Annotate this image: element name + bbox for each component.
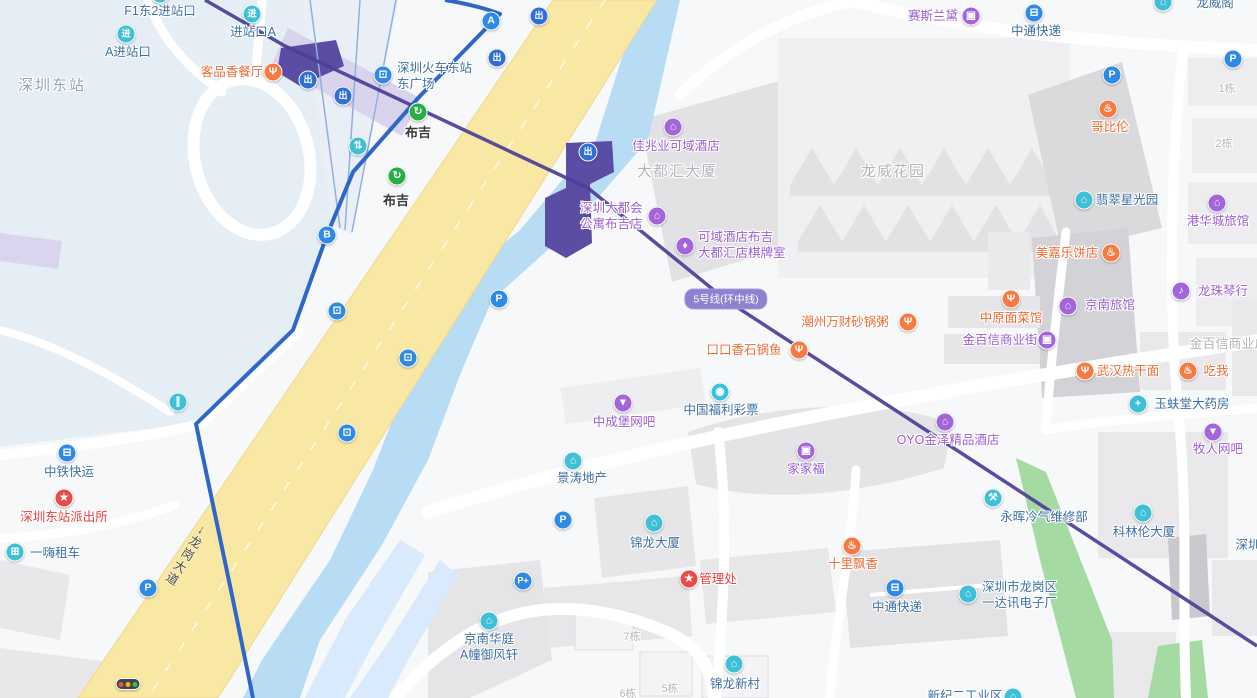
poi-label: 大都汇大厦: [637, 164, 717, 180]
poi-label: 深圳市龙岗区一达讯电子厂: [982, 579, 1057, 611]
pin-icon[interactable]: ▼: [614, 394, 633, 413]
parking-icon[interactable]: P: [554, 511, 573, 530]
star-icon[interactable]: ★: [680, 570, 699, 589]
poi-label: 中原面菜馆: [980, 310, 1043, 326]
car-icon[interactable]: ⊞: [6, 543, 25, 562]
poi-label: 锦龙大厦: [630, 535, 680, 551]
poi-label: 哥比伦: [1091, 119, 1129, 135]
hotel-icon[interactable]: ⌂: [1208, 194, 1227, 213]
building-icon[interactable]: ⌂: [480, 612, 499, 631]
poi-label: 佳兆业可域酒店: [632, 138, 720, 154]
building-icon[interactable]: ⌂: [564, 452, 583, 471]
police-icon[interactable]: ★: [55, 489, 74, 508]
poi-label: 进站口A: [230, 24, 276, 40]
poi-label: A进站口: [105, 44, 151, 60]
hotel-icon[interactable]: ⌂: [1059, 297, 1078, 316]
poi-label: 赛斯兰黛: [908, 8, 958, 24]
poi-label: 牧人网吧: [1193, 441, 1243, 457]
poi-label: 5栋: [661, 681, 678, 697]
building-icon[interactable]: ⌂: [645, 514, 664, 533]
parking-icon[interactable]: P: [1103, 66, 1122, 85]
poi-label: 龙威花园: [861, 164, 925, 180]
exit-a-icon[interactable]: A: [482, 12, 501, 31]
bus-stop-icon[interactable]: ⊡: [328, 302, 347, 321]
building-icon[interactable]: ⌂: [725, 655, 744, 674]
poi-label: 布吉: [405, 125, 431, 141]
poi-label: 龙珠琴行: [1198, 283, 1248, 299]
wrench-icon[interactable]: ⚒: [984, 489, 1003, 508]
metro-icon[interactable]: ↻: [388, 167, 407, 186]
truck-icon[interactable]: ⊟: [1025, 4, 1044, 23]
bus-station-icon[interactable]: ⊡: [374, 66, 393, 85]
traffic-light-icon: [116, 678, 141, 690]
poi-label: 深圳: [1235, 537, 1257, 553]
map-canvas[interactable]: 进F1东2进站口进进站口A进A进站口深圳东站Ψ客品香餐厅⊡深圳火车东站东广场↻布…: [0, 0, 1257, 698]
restaurant-icon[interactable]: Ψ: [264, 63, 283, 82]
pharmacy-icon[interactable]: +: [1129, 395, 1148, 414]
poi-label: 中国福利彩票: [683, 402, 758, 418]
poi-label: 布吉: [383, 193, 409, 209]
hotel-icon[interactable]: ⌂: [648, 207, 667, 226]
shopping-icon[interactable]: ▣: [1038, 331, 1057, 350]
poi-label: 锦龙新村: [710, 676, 760, 692]
poi-label: 口口香石锅鱼: [706, 342, 781, 358]
building-icon[interactable]: ⌂: [1004, 688, 1023, 698]
truck-icon[interactable]: ⊟: [886, 579, 905, 598]
poi-label: 中铁快运: [44, 464, 94, 480]
poi-label: 新纪二工业区: [927, 688, 1002, 698]
truck-icon[interactable]: ⊟: [58, 444, 77, 463]
building-icon[interactable]: ⌂: [1075, 191, 1094, 210]
metro-line-5-badge[interactable]: 5号线(环中线): [684, 289, 767, 310]
building-icon[interactable]: ⌂: [959, 585, 978, 604]
poi-label: 一嗨租车: [30, 545, 80, 561]
poi-label: 景涛地产: [557, 470, 607, 486]
exit-icon[interactable]: 出: [334, 87, 353, 106]
entrance-icon[interactable]: 进: [117, 25, 136, 44]
poi-label: F1东2进站口: [124, 3, 196, 19]
snack-icon[interactable]: ♨: [1179, 362, 1198, 381]
poi-label: 金百信商业广场: [1189, 336, 1257, 352]
exit-icon[interactable]: 出: [579, 143, 598, 162]
restaurant-icon[interactable]: Ψ: [1002, 290, 1021, 309]
poi-label: 1栋: [1218, 81, 1235, 97]
poi-label: 中通快递: [872, 599, 922, 615]
exit-icon[interactable]: 出: [530, 7, 549, 26]
building-icon[interactable]: ⌂: [1134, 504, 1153, 523]
building-icon[interactable]: ⌂: [1154, 0, 1173, 12]
poi-label: 武汉热干面: [1097, 363, 1160, 379]
poi-label: 港华城旅馆: [1187, 213, 1250, 229]
bakery-icon[interactable]: ♨: [1102, 244, 1121, 263]
poi-label: 可域酒店布吉大都汇店棋牌室: [698, 229, 786, 261]
poi-label: 深圳大都会公寓布吉店: [580, 200, 643, 232]
lottery-icon[interactable]: ◉: [711, 383, 730, 402]
restaurant-icon[interactable]: Ψ: [899, 313, 918, 332]
music-store-icon[interactable]: ♪: [1172, 282, 1191, 301]
pedestrian-icon[interactable]: ∥: [169, 393, 188, 412]
poi-label: 2栋: [1215, 136, 1232, 152]
parking-icon[interactable]: P: [139, 579, 158, 598]
restaurant-icon[interactable]: Ψ: [1076, 362, 1095, 381]
poi-label: 龙威阁: [1196, 0, 1234, 11]
hotel-icon[interactable]: ⌂: [664, 118, 683, 137]
poi-label: 中通快递: [1011, 23, 1061, 39]
poi-label: 6栋: [619, 686, 636, 698]
shopping-icon[interactable]: ▣: [797, 442, 816, 461]
metro-icon[interactable]: ↻: [409, 103, 428, 122]
poi-label: 京南华庭A幢御风轩: [460, 631, 518, 663]
poi-label: 玉蚨堂大药房: [1154, 396, 1229, 412]
poi-label: 美嘉乐饼店: [1036, 245, 1099, 261]
poi-label: 客品香餐厅: [201, 64, 264, 80]
hotel-icon[interactable]: ⌂: [936, 413, 955, 432]
parking-plus-icon[interactable]: P+: [514, 572, 533, 591]
poi-label: 家家福: [787, 461, 825, 477]
poi-label: OYO金泽精品酒店: [897, 432, 1000, 448]
parking-icon[interactable]: P: [490, 290, 509, 309]
parking-icon[interactable]: P: [1224, 50, 1243, 69]
bakery-icon[interactable]: ♨: [1099, 100, 1118, 119]
transfer-icon[interactable]: ⇅: [349, 137, 368, 156]
exit-icon[interactable]: 出: [299, 71, 318, 90]
poi-label: 翡翠星光园: [1096, 192, 1159, 208]
pin-icon[interactable]: ▼: [1204, 423, 1223, 442]
poker-room-icon[interactable]: ♦: [676, 237, 695, 256]
poi-label: 潮州万财砂锅粥: [801, 314, 889, 330]
poi-label: 深圳火车东站东广场: [397, 60, 472, 92]
poi-label: 十里飘香: [828, 556, 878, 572]
poi-layer: 进F1东2进站口进进站口A进A进站口深圳东站Ψ客品香餐厅⊡深圳火车东站东广场↻布…: [0, 0, 1257, 698]
restaurant-icon[interactable]: Ψ: [790, 341, 809, 360]
poi-label: 永晖冷气维修部: [1000, 509, 1088, 525]
poi-label: 深圳东站: [18, 78, 86, 94]
cosmetics-icon[interactable]: ▣: [962, 7, 981, 26]
poi-label: 中成堡网吧: [593, 414, 656, 430]
poi-label: 金百信商业街: [962, 332, 1037, 348]
bus-stop-icon[interactable]: ⊡: [399, 349, 418, 368]
bus-stop-icon[interactable]: ⊡: [338, 424, 357, 443]
poi-label: 7栋: [623, 629, 640, 645]
poi-label: 京南旅馆: [1085, 297, 1135, 313]
snack-icon[interactable]: ♨: [843, 537, 862, 556]
poi-label: 吃我: [1203, 363, 1228, 379]
poi-label: 科林伦大厦: [1113, 524, 1176, 540]
exit-icon[interactable]: 出: [488, 49, 507, 68]
entrance-icon[interactable]: 进: [243, 5, 262, 24]
poi-label: 管理处: [699, 571, 737, 587]
poi-label: 深圳东站派出所: [20, 509, 108, 525]
exit-b-icon[interactable]: B: [318, 226, 337, 245]
